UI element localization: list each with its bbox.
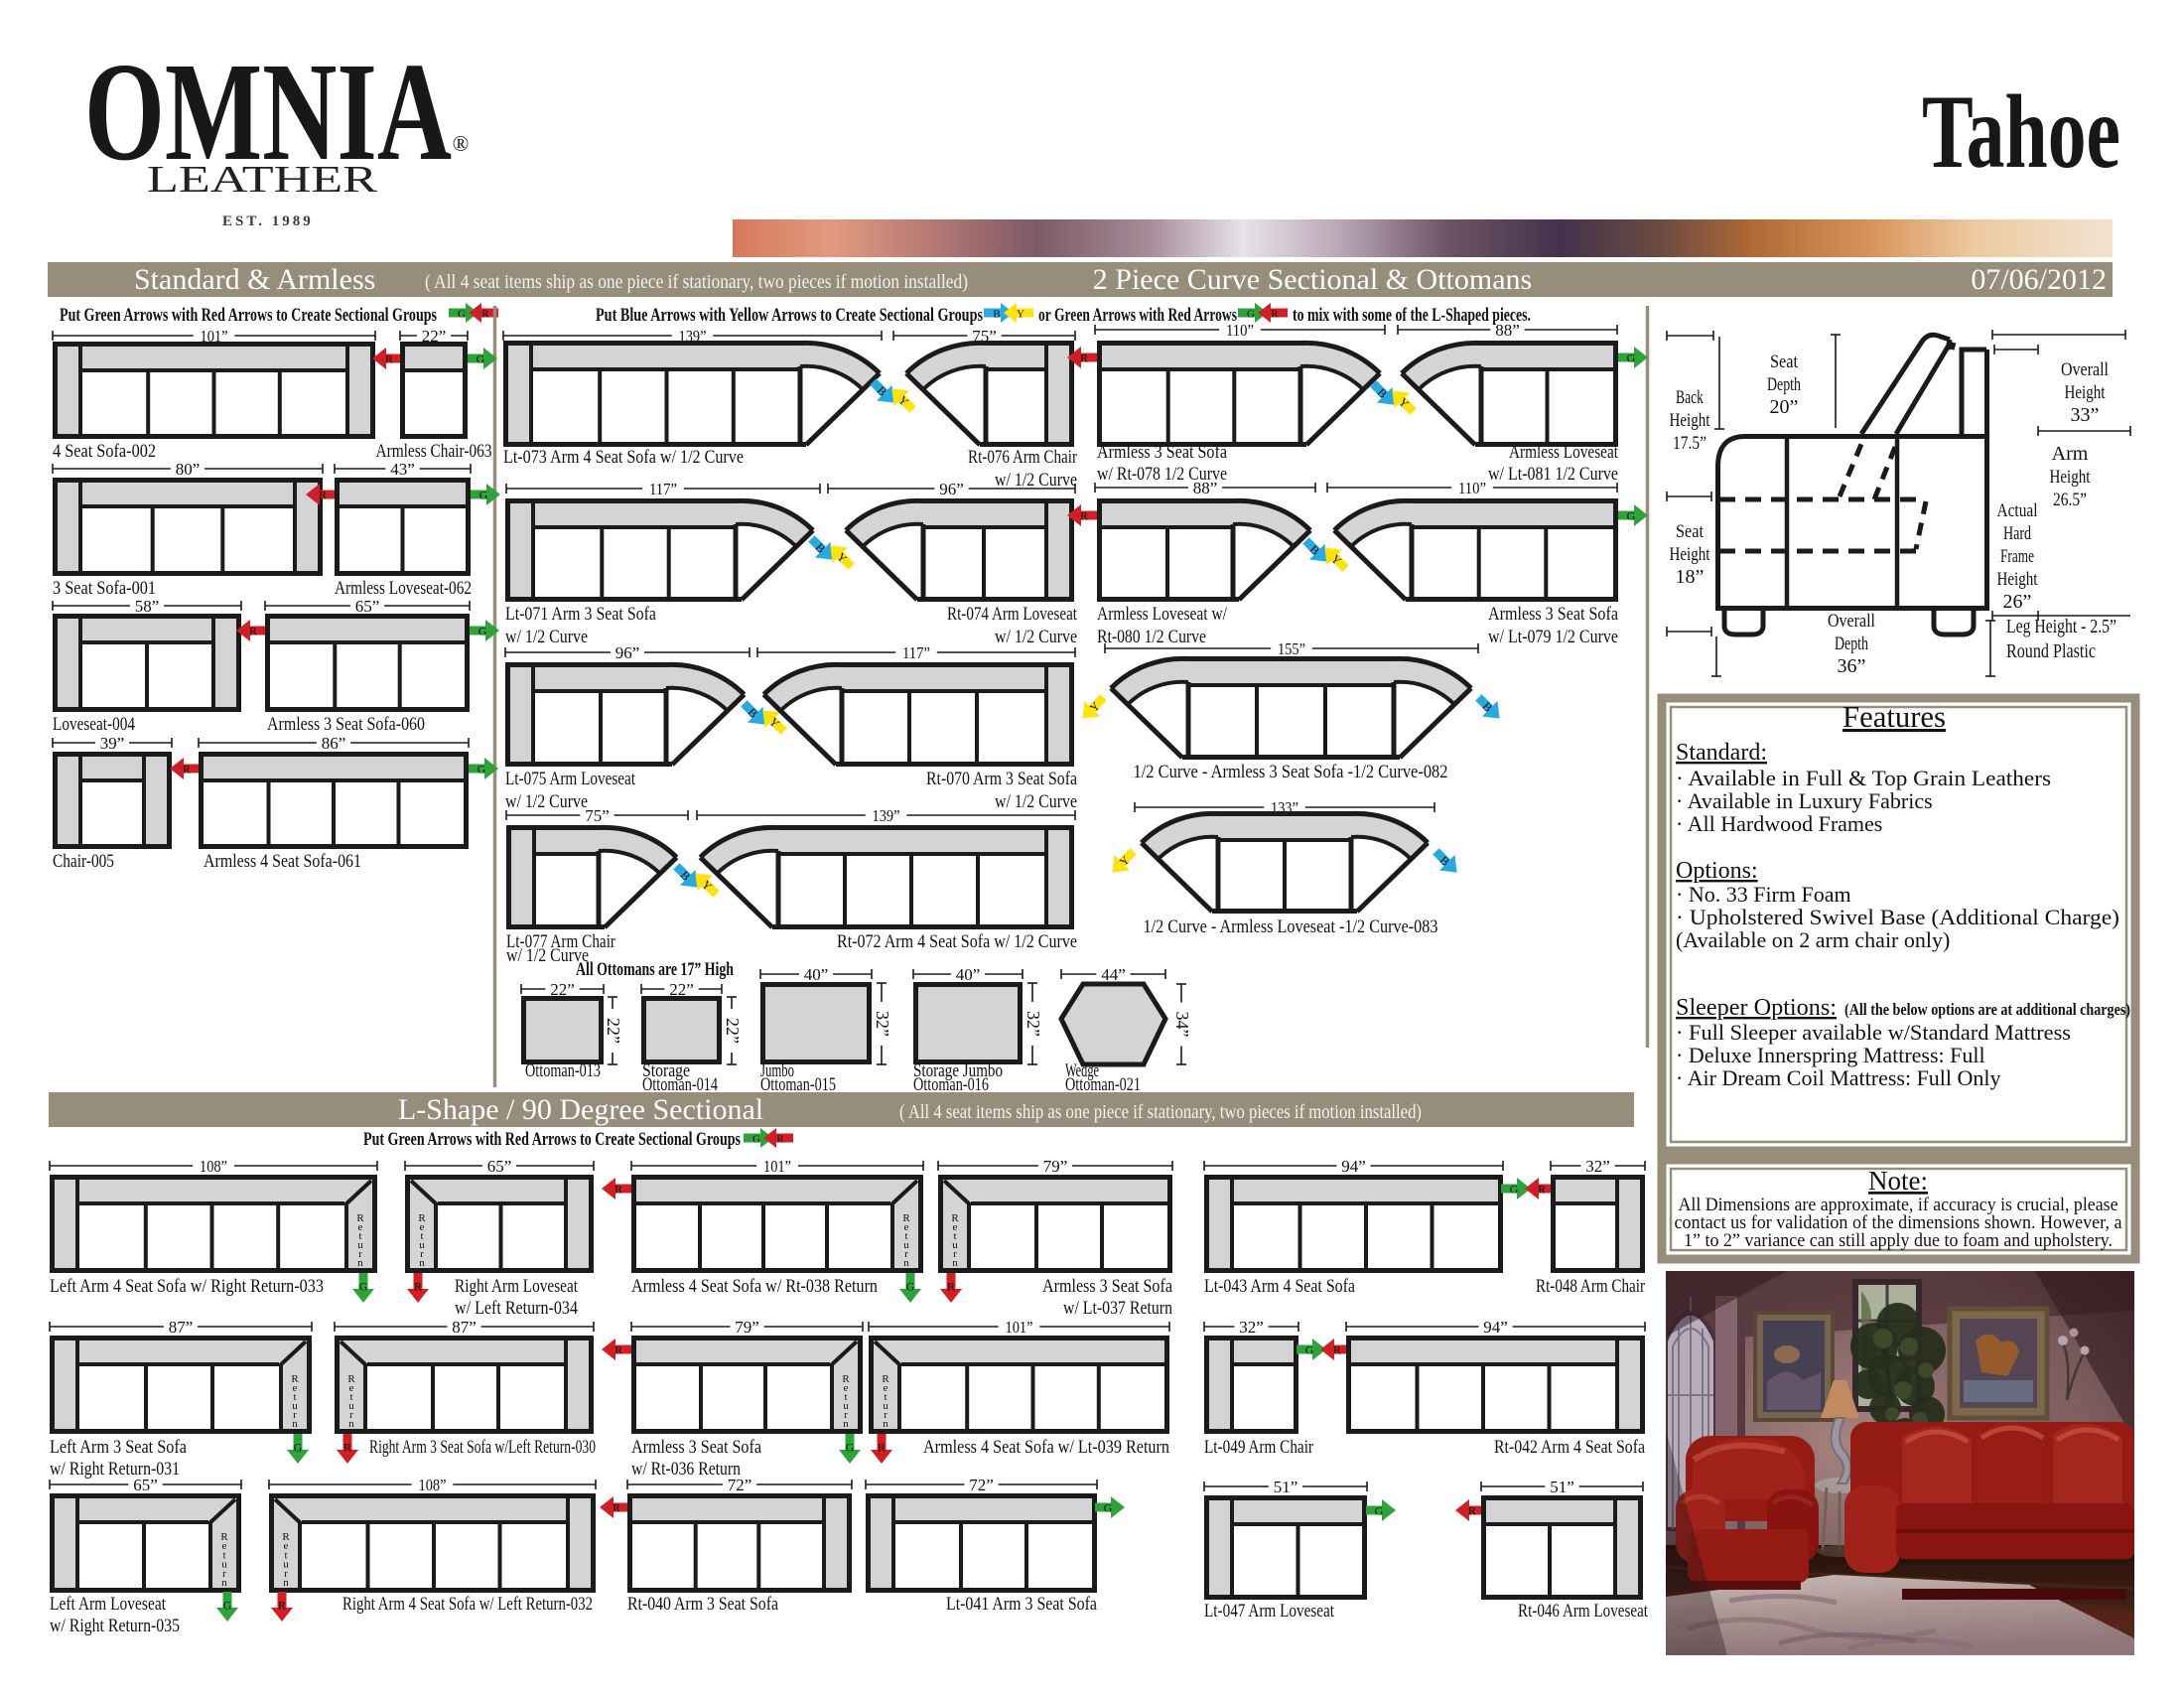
svg-text:· Deluxe Innerspring Mattress:: · Deluxe Innerspring Mattress: Full bbox=[1676, 1043, 1985, 1067]
svg-text:B: B bbox=[993, 309, 1000, 321]
svg-text:4 Seat Sofa-002: 4 Seat Sofa-002 bbox=[53, 442, 156, 462]
svg-text:G: G bbox=[1510, 1183, 1519, 1197]
svg-text:101”: 101” bbox=[763, 1157, 791, 1176]
svg-text:110”: 110” bbox=[1226, 321, 1254, 340]
svg-text:R: R bbox=[385, 353, 393, 366]
svg-text:Armless 4 Seat Sofa w/ Rt-038: Armless 4 Seat Sofa w/ Rt-038 Return bbox=[631, 1277, 878, 1297]
svg-text:All Dimensions are approximate: All Dimensions are approximate, if accur… bbox=[1679, 1196, 2118, 1215]
svg-text:72”: 72” bbox=[969, 1476, 994, 1494]
svg-text:Right Arm 3 Seat Sofa w/Left R: Right Arm 3 Seat Sofa w/Left Return-030 bbox=[369, 1438, 596, 1458]
svg-text:Armless 3 Seat Sofa: Armless 3 Seat Sofa bbox=[1042, 1277, 1172, 1297]
svg-text:R: R bbox=[878, 1441, 886, 1455]
svg-text:EST. 1989: EST. 1989 bbox=[222, 213, 314, 229]
svg-text:96”: 96” bbox=[939, 480, 964, 498]
svg-text:Put Blue Arrows with Yellow Ar: Put Blue Arrows with Yellow Arrows to Cr… bbox=[596, 305, 983, 326]
svg-text:w/ 1/2 Curve: w/ 1/2 Curve bbox=[505, 792, 588, 812]
svg-text:Right Arm Loveseat: Right Arm Loveseat bbox=[455, 1277, 579, 1297]
svg-text:n: n bbox=[357, 1257, 363, 1269]
svg-text:Rt-076 Arm Chair: Rt-076 Arm Chair bbox=[968, 448, 1077, 468]
svg-text:Depth: Depth bbox=[1767, 375, 1801, 395]
svg-text:33”: 33” bbox=[2071, 404, 2100, 426]
svg-text:Overall: Overall bbox=[2061, 360, 2109, 380]
svg-text:w/ 1/2 Curve: w/ 1/2 Curve bbox=[995, 628, 1077, 647]
svg-text:G: G bbox=[478, 625, 487, 638]
svg-text:Features: Features bbox=[1843, 699, 1946, 734]
svg-text:51”: 51” bbox=[1550, 1478, 1574, 1496]
svg-text:n: n bbox=[283, 1577, 289, 1589]
svg-text:n: n bbox=[348, 1418, 354, 1430]
svg-text:Y: Y bbox=[1017, 309, 1024, 321]
svg-text:108”: 108” bbox=[419, 1476, 447, 1494]
svg-text:36”: 36” bbox=[1838, 655, 1866, 677]
svg-text:G: G bbox=[1104, 1501, 1113, 1515]
svg-text:39”: 39” bbox=[100, 734, 125, 753]
svg-text:R: R bbox=[1468, 1504, 1476, 1518]
svg-text:1/2 Curve - Armless 3 Seat Sof: 1/2 Curve - Armless 3 Seat Sofa -1/2 Cur… bbox=[1134, 763, 1448, 782]
svg-text:Options:: Options: bbox=[1676, 858, 1758, 884]
svg-text:G: G bbox=[906, 1280, 915, 1294]
svg-text:1/2 Curve - Armless Loveseat -: 1/2 Curve - Armless Loveseat -1/2 Curve-… bbox=[1144, 917, 1438, 937]
svg-text:LEATHER: LEATHER bbox=[147, 159, 378, 201]
svg-text:n: n bbox=[952, 1257, 958, 1269]
svg-text:Seat: Seat bbox=[1676, 522, 1705, 542]
svg-text:Lt-049 Arm Chair: Lt-049 Arm Chair bbox=[1204, 1438, 1313, 1458]
svg-text:Leg Height - 2.5”: Leg Height - 2.5” bbox=[2006, 616, 2116, 637]
svg-text:Note:: Note: bbox=[1868, 1166, 1928, 1196]
svg-text:65”: 65” bbox=[133, 1476, 158, 1494]
svg-text:Height: Height bbox=[2065, 383, 2107, 403]
svg-text:R: R bbox=[1080, 509, 1088, 523]
svg-text:Standard:: Standard: bbox=[1676, 740, 1767, 766]
svg-text:( All 4 seat items ship as one: ( All 4 seat items ship as one piece if … bbox=[425, 271, 968, 293]
svg-text:94”: 94” bbox=[1341, 1157, 1366, 1176]
svg-text:86”: 86” bbox=[322, 734, 346, 753]
svg-text:101”: 101” bbox=[1006, 1318, 1033, 1337]
svg-text:R: R bbox=[319, 489, 327, 502]
svg-text:32”: 32” bbox=[873, 1011, 892, 1037]
svg-text:n: n bbox=[883, 1418, 888, 1430]
svg-text:Right Arm 4 Seat Sofa w/ Left: Right Arm 4 Seat Sofa w/ Left Return-032 bbox=[342, 1595, 593, 1615]
svg-text:Lt-047 Arm Loveseat: Lt-047 Arm Loveseat bbox=[1204, 1602, 1335, 1622]
svg-text:Overall: Overall bbox=[1828, 612, 1875, 632]
svg-text:Lt-071 Arm 3 Seat Sofa: Lt-071 Arm 3 Seat Sofa bbox=[505, 605, 656, 625]
svg-text:R: R bbox=[1080, 352, 1088, 365]
svg-text:Armless 4 Seat Sofa w/ Lt-039: Armless 4 Seat Sofa w/ Lt-039 Return bbox=[923, 1438, 1169, 1458]
svg-text:w/ Lt-081 1/2 Curve: w/ Lt-081 1/2 Curve bbox=[1488, 465, 1618, 485]
svg-text:96”: 96” bbox=[615, 643, 640, 662]
svg-text:Seat: Seat bbox=[1770, 353, 1799, 372]
svg-text:G: G bbox=[752, 1134, 760, 1146]
svg-text:Armless 3 Seat Sofa: Armless 3 Seat Sofa bbox=[1097, 443, 1227, 463]
svg-text:Loveseat-004: Loveseat-004 bbox=[53, 715, 135, 735]
svg-text:G: G bbox=[1375, 1504, 1384, 1518]
svg-text:72”: 72” bbox=[728, 1476, 752, 1494]
svg-text:· Upholstered Swivel Base (Add: · Upholstered Swivel Base (Additional Ch… bbox=[1676, 905, 2119, 929]
svg-text:Frame: Frame bbox=[2000, 547, 2034, 567]
svg-text:Ottoman-013: Ottoman-013 bbox=[525, 1061, 601, 1081]
svg-text:w/ Right Return-031: w/ Right Return-031 bbox=[50, 1460, 180, 1480]
svg-text:R: R bbox=[343, 1441, 351, 1455]
svg-text:G: G bbox=[478, 763, 486, 776]
svg-text:Left Arm 4 Seat Sofa w/ Right: Left Arm 4 Seat Sofa w/ Right Return-033 bbox=[50, 1277, 324, 1297]
svg-text:Rt-042 Arm 4 Seat Sofa: Rt-042 Arm 4 Seat Sofa bbox=[1494, 1438, 1645, 1458]
svg-text:Hard: Hard bbox=[2003, 524, 2032, 544]
svg-text:58”: 58” bbox=[135, 597, 160, 616]
svg-text:w/ Left Return-034: w/ Left Return-034 bbox=[455, 1299, 578, 1319]
svg-text:Actual: Actual bbox=[1997, 501, 2038, 521]
svg-text:Height: Height bbox=[1670, 411, 1711, 431]
svg-text:139”: 139” bbox=[873, 806, 900, 825]
svg-text:22”: 22” bbox=[604, 1018, 623, 1044]
svg-text:Lt-041 Arm 3 Seat Sofa: Lt-041 Arm 3 Seat Sofa bbox=[946, 1595, 1097, 1615]
svg-text:80”: 80” bbox=[176, 460, 201, 479]
svg-text:Rt-080 1/2 Curve: Rt-080 1/2 Curve bbox=[1097, 628, 1206, 647]
svg-text:n: n bbox=[221, 1577, 227, 1589]
svg-text:Height: Height bbox=[1670, 545, 1711, 565]
svg-text:R: R bbox=[481, 309, 489, 321]
svg-text:Back: Back bbox=[1676, 388, 1705, 408]
svg-text:G: G bbox=[477, 353, 485, 366]
svg-text:Lt-043 Arm 4 Seat Sofa: Lt-043 Arm 4 Seat Sofa bbox=[1204, 1277, 1355, 1297]
svg-text:65”: 65” bbox=[487, 1157, 512, 1176]
svg-text:88”: 88” bbox=[1495, 321, 1520, 340]
svg-text:40”: 40” bbox=[956, 965, 981, 984]
svg-text:Sleeper Options:: Sleeper Options: bbox=[1676, 995, 1837, 1021]
svg-text:w/ Lt-079 1/2 Curve: w/ Lt-079 1/2 Curve bbox=[1488, 628, 1618, 647]
svg-text:(All the below options are at: (All the below options are at additional… bbox=[1844, 1000, 2130, 1019]
svg-text:Lt-073 Arm 4 Seat Sofa w/ 1/2: Lt-073 Arm 4 Seat Sofa w/ 1/2 Curve bbox=[503, 448, 744, 468]
svg-text:w/ Rt-036 Return: w/ Rt-036 Return bbox=[631, 1460, 741, 1480]
svg-text:79”: 79” bbox=[1043, 1157, 1068, 1176]
svg-text:· Air Dream Coil Mattress: Ful: · Air Dream Coil Mattress: Full Only bbox=[1676, 1065, 2001, 1090]
svg-text:155”: 155” bbox=[1278, 639, 1305, 658]
svg-text:Armless Loveseat-062: Armless Loveseat-062 bbox=[335, 579, 472, 599]
svg-text:Height: Height bbox=[1997, 570, 2039, 590]
svg-text:Armless Chair-063: Armless Chair-063 bbox=[376, 442, 492, 462]
svg-text:26”: 26” bbox=[2003, 591, 2032, 613]
svg-text:87”: 87” bbox=[452, 1318, 477, 1337]
svg-text:Armless Loveseat w/: Armless Loveseat w/ bbox=[1097, 605, 1228, 625]
svg-text:51”: 51” bbox=[1274, 1478, 1298, 1496]
svg-text:G: G bbox=[458, 309, 466, 321]
svg-text:Armless 4 Seat Sofa-061: Armless 4 Seat Sofa-061 bbox=[204, 852, 361, 872]
svg-text:· No. 33 Firm Foam: · No. 33 Firm Foam bbox=[1676, 882, 1851, 907]
svg-text:G: G bbox=[846, 1441, 855, 1455]
svg-text:· Full Sleeper available w/Sta: · Full Sleeper available w/Standard Matt… bbox=[1676, 1020, 2071, 1045]
svg-text:Rt-046 Arm Loveseat: Rt-046 Arm Loveseat bbox=[1518, 1602, 1649, 1622]
svg-text:· All Hardwood Frames: · All Hardwood Frames bbox=[1676, 811, 1882, 836]
svg-text:· Available in Luxury Fabrics: · Available in Luxury Fabrics bbox=[1676, 788, 1933, 813]
svg-text:R: R bbox=[613, 1501, 620, 1515]
svg-text:G: G bbox=[294, 1441, 303, 1455]
svg-text:G: G bbox=[1627, 509, 1636, 523]
svg-text:34”: 34” bbox=[1172, 1012, 1192, 1038]
svg-text:3 Seat Sofa-001: 3 Seat Sofa-001 bbox=[53, 579, 156, 599]
svg-text:· Available in Full & Top Grai: · Available in Full & Top Grain Leathers bbox=[1676, 766, 2051, 790]
svg-text:Left Arm Loveseat: Left Arm Loveseat bbox=[50, 1595, 167, 1615]
svg-text:n: n bbox=[903, 1257, 909, 1269]
svg-text:07/06/2012: 07/06/2012 bbox=[1971, 263, 2107, 296]
svg-text:79”: 79” bbox=[735, 1318, 759, 1337]
svg-text:Left Arm 3 Seat Sofa: Left Arm 3 Seat Sofa bbox=[50, 1438, 187, 1458]
svg-text:108”: 108” bbox=[200, 1157, 227, 1176]
svg-text:40”: 40” bbox=[804, 965, 829, 984]
svg-text:32”: 32” bbox=[1239, 1318, 1264, 1337]
svg-text:117”: 117” bbox=[649, 480, 677, 498]
svg-text:18”: 18” bbox=[1676, 566, 1705, 588]
svg-text:32”: 32” bbox=[1024, 1011, 1043, 1037]
svg-text:R: R bbox=[249, 625, 257, 638]
svg-text:R: R bbox=[1271, 309, 1279, 321]
svg-text:117”: 117” bbox=[902, 643, 930, 662]
svg-text:G: G bbox=[1627, 352, 1636, 365]
svg-text:n: n bbox=[419, 1257, 425, 1269]
svg-text:( All 4 seat items ship as one: ( All 4 seat items ship as one piece if … bbox=[899, 1101, 1422, 1123]
svg-text:110”: 110” bbox=[1458, 479, 1486, 497]
svg-text:G: G bbox=[1305, 1343, 1314, 1357]
svg-text:R: R bbox=[614, 1343, 622, 1357]
svg-text:w/ Lt-037 Return: w/ Lt-037 Return bbox=[1063, 1299, 1172, 1319]
svg-text:R: R bbox=[183, 763, 191, 776]
svg-text:88”: 88” bbox=[1193, 479, 1218, 497]
svg-text:26.5”: 26.5” bbox=[2053, 491, 2087, 510]
svg-text:G: G bbox=[359, 1280, 368, 1294]
svg-text:n: n bbox=[843, 1418, 849, 1430]
svg-text:Put Green Arrows with Red Arro: Put Green Arrows with Red Arrows to Crea… bbox=[363, 1129, 741, 1150]
svg-text:Chair-005: Chair-005 bbox=[53, 852, 114, 872]
svg-text:1” to 2” variance can still ap: 1” to 2” variance can still apply due to… bbox=[1684, 1231, 2113, 1251]
svg-text:Rt-040 Arm 3 Seat Sofa: Rt-040 Arm 3 Seat Sofa bbox=[627, 1595, 778, 1615]
svg-text:Lt-075 Arm Loveseat: Lt-075 Arm Loveseat bbox=[505, 770, 636, 789]
svg-text:R: R bbox=[1538, 1183, 1546, 1197]
svg-text:w/ 1/2 Curve: w/ 1/2 Curve bbox=[505, 628, 588, 647]
svg-text:17.5”: 17.5” bbox=[1673, 434, 1706, 454]
svg-text:Armless 3 Seat Sofa-060: Armless 3 Seat Sofa-060 bbox=[267, 715, 425, 735]
svg-text:94”: 94” bbox=[1483, 1318, 1508, 1337]
svg-text:Rt-074 Arm Loveseat: Rt-074 Arm Loveseat bbox=[947, 605, 1078, 625]
svg-text:contact us for validation of t: contact us for validation of the dimensi… bbox=[1675, 1213, 2122, 1233]
svg-text:R: R bbox=[1333, 1343, 1341, 1357]
svg-text:Rt-048 Arm Chair: Rt-048 Arm Chair bbox=[1536, 1277, 1645, 1297]
svg-text:Round Plastic: Round Plastic bbox=[2006, 640, 2096, 662]
svg-text:Standard & Armless: Standard & Armless bbox=[134, 263, 375, 296]
svg-text:All Ottomans are 17” High: All Ottomans are 17” High bbox=[576, 959, 734, 980]
svg-text:R: R bbox=[278, 1599, 286, 1613]
svg-text:Tahoe: Tahoe bbox=[1922, 73, 2120, 190]
svg-text:R: R bbox=[776, 1134, 784, 1146]
svg-text:®: ® bbox=[453, 131, 470, 156]
svg-text:Height: Height bbox=[2050, 468, 2092, 488]
svg-text:R: R bbox=[614, 1183, 622, 1197]
svg-text:20”: 20” bbox=[1770, 396, 1799, 418]
svg-text:Armless Loveseat: Armless Loveseat bbox=[1509, 443, 1619, 463]
svg-text:w/ 1/2 Curve: w/ 1/2 Curve bbox=[995, 792, 1077, 812]
svg-text:w/ Right Return-035: w/ Right Return-035 bbox=[50, 1617, 180, 1636]
svg-text:87”: 87” bbox=[169, 1318, 194, 1337]
svg-text:65”: 65” bbox=[355, 597, 380, 616]
svg-text:G: G bbox=[1247, 309, 1255, 321]
svg-text:R: R bbox=[947, 1280, 955, 1294]
svg-text:44”: 44” bbox=[1101, 965, 1126, 984]
svg-text:G: G bbox=[223, 1599, 232, 1613]
svg-text:(Available on 2 arm chair only: (Available on 2 arm chair only) bbox=[1676, 927, 1950, 952]
svg-text:L-Shape / 90 Degree Sectional: L-Shape / 90 Degree Sectional bbox=[398, 1093, 763, 1126]
svg-text:Put Green Arrows with Red Arro: Put Green Arrows with Red Arrows to Crea… bbox=[60, 305, 437, 326]
svg-text:or Green Arrows with Red Arrow: or Green Arrows with Red Arrows bbox=[1038, 305, 1237, 326]
svg-text:43”: 43” bbox=[390, 460, 415, 479]
svg-text:n: n bbox=[292, 1418, 298, 1430]
svg-text:22”: 22” bbox=[723, 1018, 743, 1044]
svg-text:w/ 1/2 Curve: w/ 1/2 Curve bbox=[995, 471, 1077, 491]
svg-text:Arm: Arm bbox=[2052, 443, 2089, 465]
svg-text:32”: 32” bbox=[1585, 1157, 1610, 1176]
svg-text:Armless 3 Seat Sofa: Armless 3 Seat Sofa bbox=[1488, 605, 1618, 625]
svg-text:Armless 3 Seat Sofa: Armless 3 Seat Sofa bbox=[631, 1438, 761, 1458]
svg-text:R: R bbox=[414, 1280, 422, 1294]
svg-text:Rt-070 Arm 3 Seat Sofa: Rt-070 Arm 3 Seat Sofa bbox=[926, 770, 1077, 789]
svg-text:G: G bbox=[479, 489, 488, 502]
svg-text:75”: 75” bbox=[585, 806, 610, 825]
svg-text:2 Piece Curve Sectional & Otto: 2 Piece Curve Sectional & Ottomans bbox=[1093, 263, 1532, 296]
svg-text:Rt-072 Arm 4 Seat Sofa w/ 1/2: Rt-072 Arm 4 Seat Sofa w/ 1/2 Curve bbox=[837, 932, 1077, 952]
svg-text:Depth: Depth bbox=[1835, 635, 1868, 654]
